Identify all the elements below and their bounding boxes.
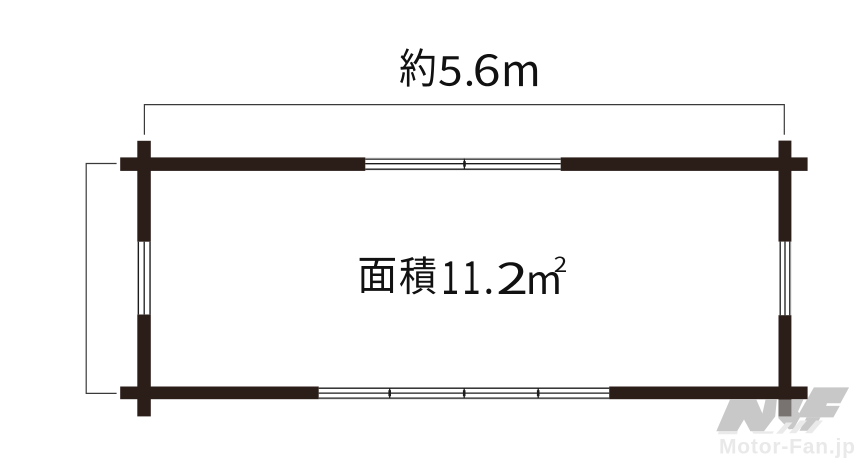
svg-text:Motor-Fan.jp: Motor-Fan.jp	[719, 436, 856, 459]
